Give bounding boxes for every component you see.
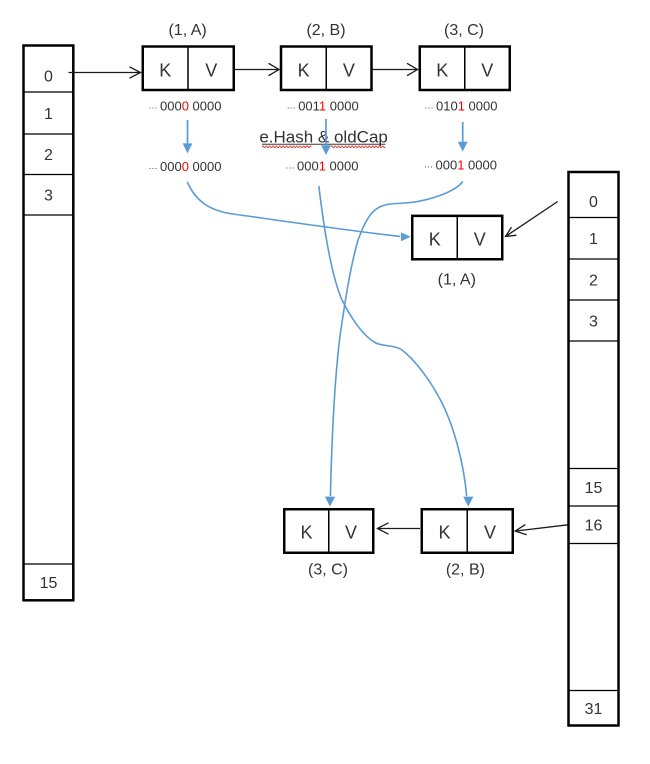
svg-text:16: 16 (585, 518, 603, 535)
svg-text:1: 1 (589, 231, 598, 248)
svg-text:(2, B): (2, B) (446, 562, 485, 579)
svg-text:··· 0011 0000: ··· 0011 0000 (287, 99, 359, 114)
svg-text:(2, B): (2, B) (306, 22, 345, 39)
svg-text:e.Hash & oldCap: e.Hash & oldCap (259, 127, 388, 146)
svg-text:V: V (484, 523, 496, 543)
svg-text:K: K (429, 229, 441, 249)
svg-text:··· 0101 0000: ··· 0101 0000 (425, 99, 498, 114)
svg-text:··· 0001 0000: ··· 0001 0000 (424, 158, 497, 173)
svg-text:K: K (159, 60, 171, 80)
svg-text:(3, C): (3, C) (308, 562, 348, 579)
svg-text:K: K (438, 523, 450, 543)
svg-text:0: 0 (589, 194, 598, 211)
svg-text:0: 0 (44, 68, 53, 85)
svg-text:K: K (300, 523, 312, 543)
svg-text:K: K (298, 60, 310, 80)
svg-text:15: 15 (40, 575, 58, 592)
svg-text:V: V (343, 60, 355, 80)
svg-text:2: 2 (589, 272, 598, 289)
svg-text:(3, C): (3, C) (444, 22, 484, 39)
svg-text:1: 1 (44, 106, 53, 123)
svg-text:K: K (436, 60, 448, 80)
svg-text:15: 15 (585, 480, 603, 497)
svg-text:(1, A): (1, A) (168, 22, 206, 39)
svg-text:3: 3 (589, 313, 598, 330)
svg-text:3: 3 (44, 188, 53, 205)
svg-text:V: V (205, 60, 217, 80)
svg-text:31: 31 (585, 701, 603, 718)
svg-text:··· 0001 0000: ··· 0001 0000 (286, 159, 359, 174)
svg-text:··· 0000 0000: ··· 0000 0000 (149, 159, 222, 174)
svg-text:(1, A): (1, A) (438, 272, 476, 289)
svg-text:V: V (345, 523, 357, 543)
svg-text:V: V (481, 60, 493, 80)
svg-text:··· 0000 0000: ··· 0000 0000 (149, 99, 222, 114)
svg-text:V: V (474, 229, 486, 249)
svg-text:2: 2 (44, 147, 53, 164)
